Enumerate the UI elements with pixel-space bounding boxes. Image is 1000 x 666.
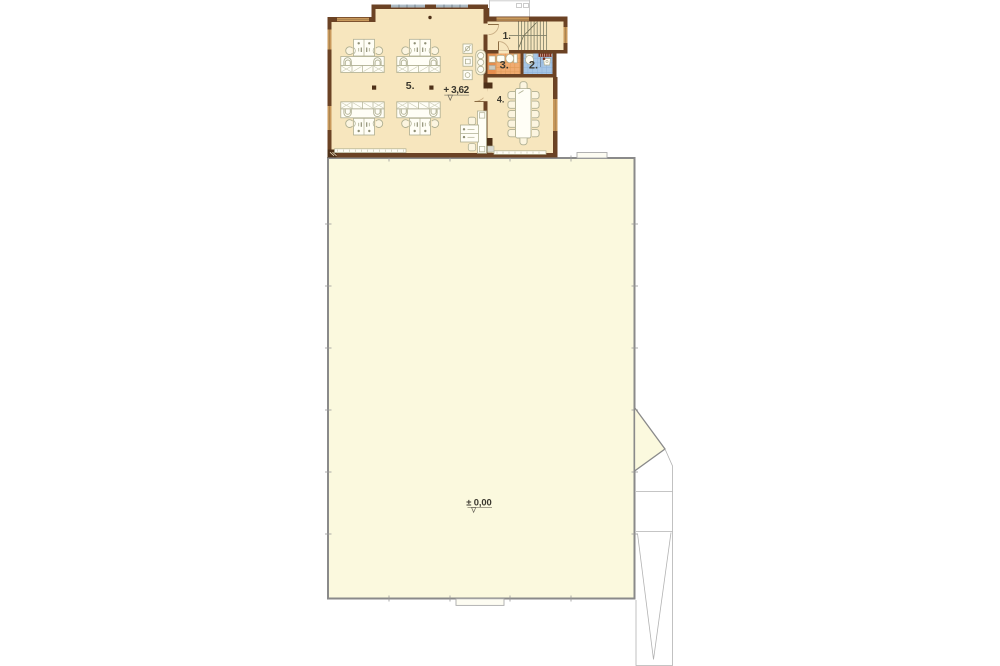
svg-text:5.: 5. xyxy=(406,80,415,92)
svg-text:+ 3,62: + 3,62 xyxy=(443,85,469,96)
svg-text:3.: 3. xyxy=(500,59,509,71)
svg-text:4.: 4. xyxy=(497,95,505,105)
svg-text:± 0,00: ± 0,00 xyxy=(466,497,491,508)
svg-text:2.: 2. xyxy=(529,59,538,71)
svg-text:1.: 1. xyxy=(503,31,512,42)
